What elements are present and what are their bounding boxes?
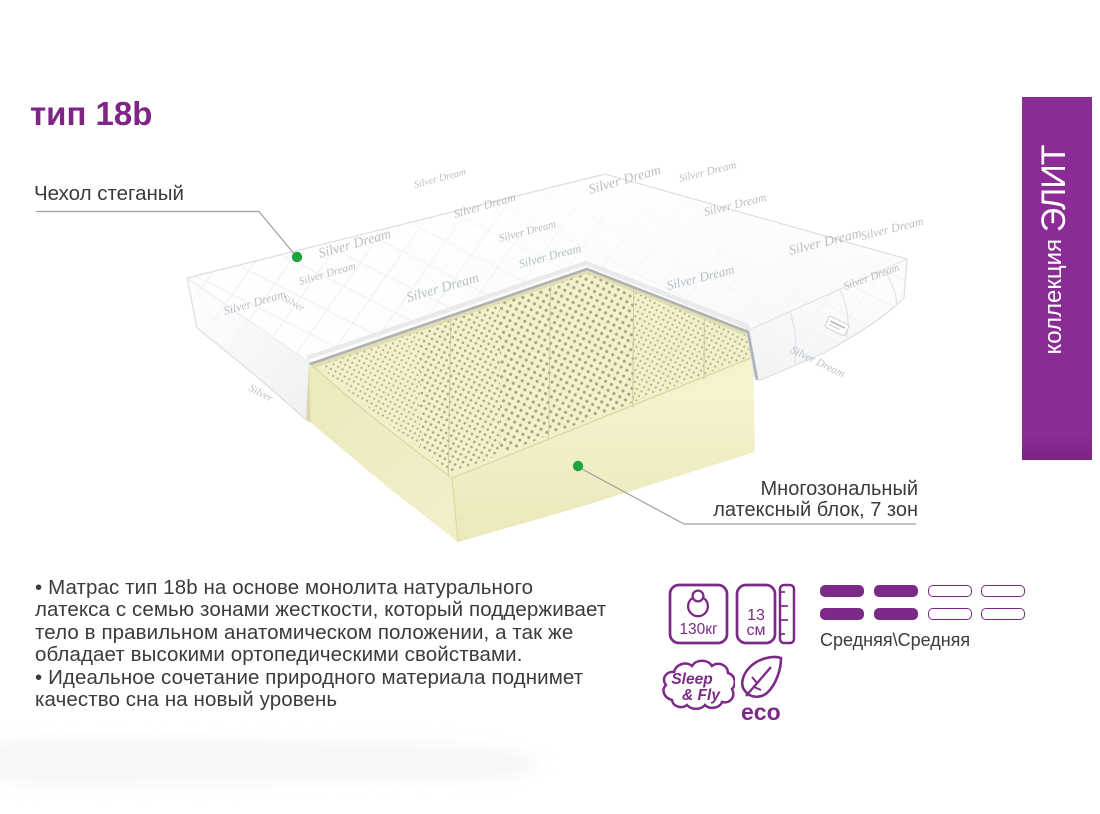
svg-text:130кг: 130кг	[679, 621, 718, 638]
svg-text:Silver Dream: Silver Dream	[859, 214, 925, 243]
svg-text:Silver Dream: Silver Dream	[678, 159, 738, 185]
svg-text:& Fly: & Fly	[682, 687, 721, 704]
svg-text:см: см	[747, 622, 766, 639]
svg-text:Silver Dream: Silver Dream	[413, 166, 467, 190]
svg-text:Sleep: Sleep	[671, 671, 712, 688]
svg-text:eco: eco	[741, 699, 781, 724]
